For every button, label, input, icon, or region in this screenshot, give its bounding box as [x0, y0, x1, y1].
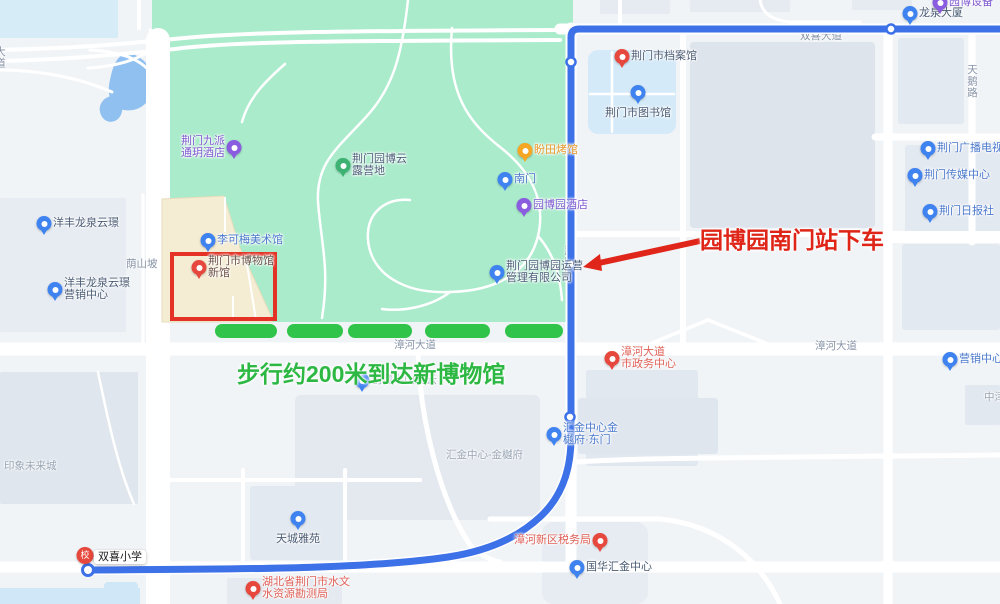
poi-jiupai-hotel-pin[interactable]	[227, 140, 242, 155]
poi-marketing-center-pin[interactable]	[943, 352, 958, 367]
poi-jingmen-archives-pin[interactable]	[615, 49, 630, 64]
walk-note-text: 步行约200米到达新博物馆	[237, 355, 505, 389]
poi-jingmen-museum-new-pin[interactable]	[192, 260, 207, 275]
poi-south-gate-pin[interactable]	[498, 172, 513, 187]
poi-yuanboyuan-hotel-pin[interactable]	[517, 198, 532, 213]
alight-arrow	[583, 241, 700, 271]
poi-likemei-gallery-pin[interactable]	[201, 233, 216, 248]
poi-pantian-restaurant-pin[interactable]	[518, 143, 533, 158]
bus-route-casing	[92, 29, 1000, 570]
poi-zhanghe-gov-center-pin[interactable]	[605, 351, 620, 366]
poi-yuanbo-camp-pin[interactable]	[336, 158, 351, 173]
bus-route-polyline	[92, 29, 1000, 570]
poi-huijin-east-gate-pin[interactable]	[547, 427, 562, 442]
transit-stop-markers[interactable]	[83, 25, 896, 576]
poi-jingmen-broadcast-tv-pin[interactable]	[921, 141, 936, 156]
yuanboyuan-south-gate-stop[interactable]	[567, 260, 576, 269]
poi-tiancheng-yayuan-pin[interactable]	[291, 511, 306, 526]
route-overlay	[0, 0, 1000, 604]
poi-yuanbo-operations-pin[interactable]	[490, 265, 505, 280]
poi-jingmen-daily-news-pin[interactable]	[923, 204, 938, 219]
poi-jingmen-media-center-pin[interactable]	[908, 168, 923, 183]
map-canvas[interactable]: 双喜大道天鹅路漳河大道漳河大道荫山坡惠民路汇金中心-金樾府印象未来城中津大道 龙…	[0, 0, 1000, 604]
poi-guohua-huijin-pin[interactable]	[570, 560, 585, 575]
poi-yangfeng-marketing-pin[interactable]	[48, 282, 63, 297]
alight-note-text: 园博园南门站下车	[700, 221, 884, 255]
poi-hydrology-bureau-pin[interactable]	[246, 581, 261, 596]
poi-jingmen-library-pin[interactable]	[631, 85, 646, 100]
poi-yangfeng-longquan-pin[interactable]	[37, 216, 52, 231]
poi-longquan-building-pin[interactable]	[903, 6, 918, 21]
poi-shuangxi-school-pin[interactable]	[77, 547, 94, 564]
poi-tax-bureau-pin[interactable]	[593, 533, 608, 548]
museum-highlight-box	[172, 254, 275, 319]
